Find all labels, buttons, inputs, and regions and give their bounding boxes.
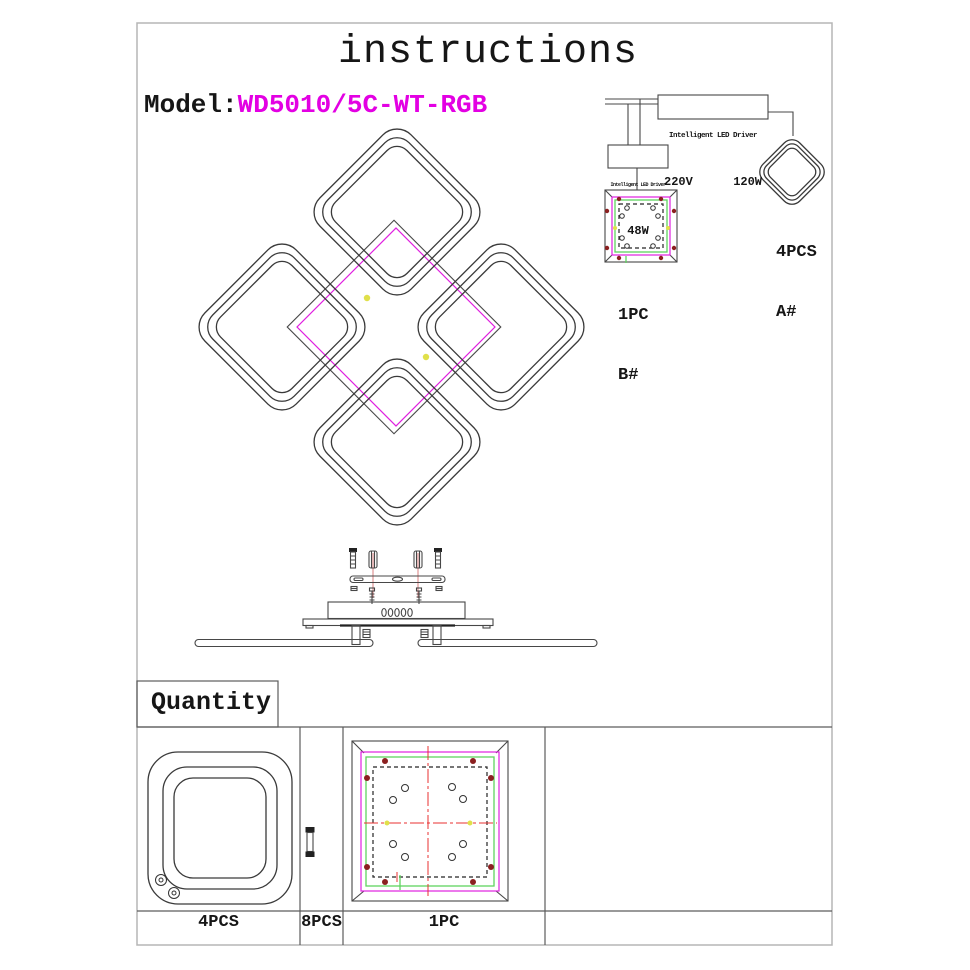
mounting-side-view [195, 548, 597, 647]
model-number: WD5010/5C-WT-RGB [238, 90, 488, 120]
main-driver-voltage: 220V [664, 176, 693, 189]
standoff-qty: 8PCS [298, 913, 345, 932]
table-item-base-plate [352, 741, 508, 901]
page-title: instructions [337, 30, 639, 75]
frame-arm-right [418, 640, 597, 647]
ring-frame-qty: 4PCS [137, 913, 300, 932]
expansion-screw [434, 548, 442, 568]
base-plate-edge [303, 619, 493, 628]
mounting-bar [350, 576, 445, 583]
table-item-ring-frame [148, 752, 292, 904]
instruction-sheet: instructions Model:WD5010/5C-WT-RGB Inte… [0, 0, 970, 970]
marker-dot [423, 354, 429, 360]
marker-dot [364, 295, 370, 301]
ring-part-qty: 4PCS [776, 243, 817, 263]
ring-part-label: 4PCS A# [776, 203, 817, 343]
plate-outline-diamond [287, 220, 501, 434]
side-screw [421, 630, 428, 638]
base-part-label: 1PC B# [618, 266, 649, 406]
table-item-standoff [306, 827, 315, 857]
model-line: Model:WD5010/5C-WT-RGB [144, 90, 487, 120]
nut [436, 587, 442, 591]
driver-housing [328, 602, 465, 619]
sub-driver-name: Intelligent LED Driver [609, 182, 667, 188]
sheet-artwork [0, 0, 970, 970]
main-driver-label: Intelligent LED Driver 220V 120W [659, 96, 767, 118]
sub-driver-wires [628, 99, 640, 145]
quantity-heading: Quantity [151, 688, 271, 717]
main-driver-power: 120W [733, 176, 762, 189]
standoff [433, 626, 441, 645]
main-driver-name: Intelligent LED Driver [659, 132, 767, 140]
model-label: Model: [144, 90, 238, 120]
base-part-qty: 1PC [618, 306, 649, 326]
sub-driver-power: 48W [609, 224, 667, 238]
base-plate-qty: 1PC [343, 913, 545, 932]
plate-magenta-diamond [297, 228, 495, 426]
mains-wires [605, 99, 658, 104]
nut [351, 587, 357, 591]
expansion-screw [349, 548, 357, 568]
ring-part-wire [768, 112, 793, 136]
sub-driver-label: Intelligent LED Driver 48W [609, 146, 667, 256]
lamp-top-view [191, 121, 592, 533]
quantity-table [137, 681, 832, 945]
ring-part-code: A# [776, 303, 817, 323]
frame-arm-left [195, 640, 373, 647]
base-part-code: B# [618, 366, 649, 386]
side-screw [363, 630, 370, 638]
center-crosshair [364, 746, 497, 896]
standoff [352, 626, 360, 645]
ring-frame-left [191, 236, 373, 418]
